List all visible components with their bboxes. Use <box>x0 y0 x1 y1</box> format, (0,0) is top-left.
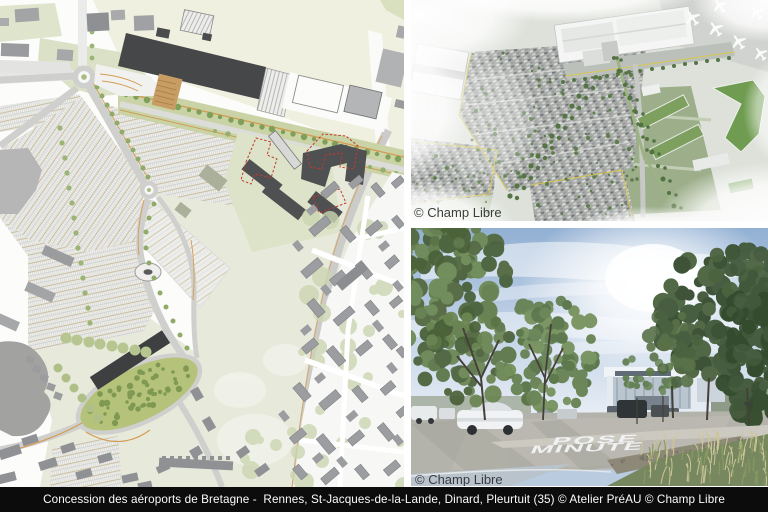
svg-text:© Champ Libre: © Champ Libre <box>414 205 502 220</box>
svg-text:© Champ Libre: © Champ Libre <box>415 472 503 486</box>
